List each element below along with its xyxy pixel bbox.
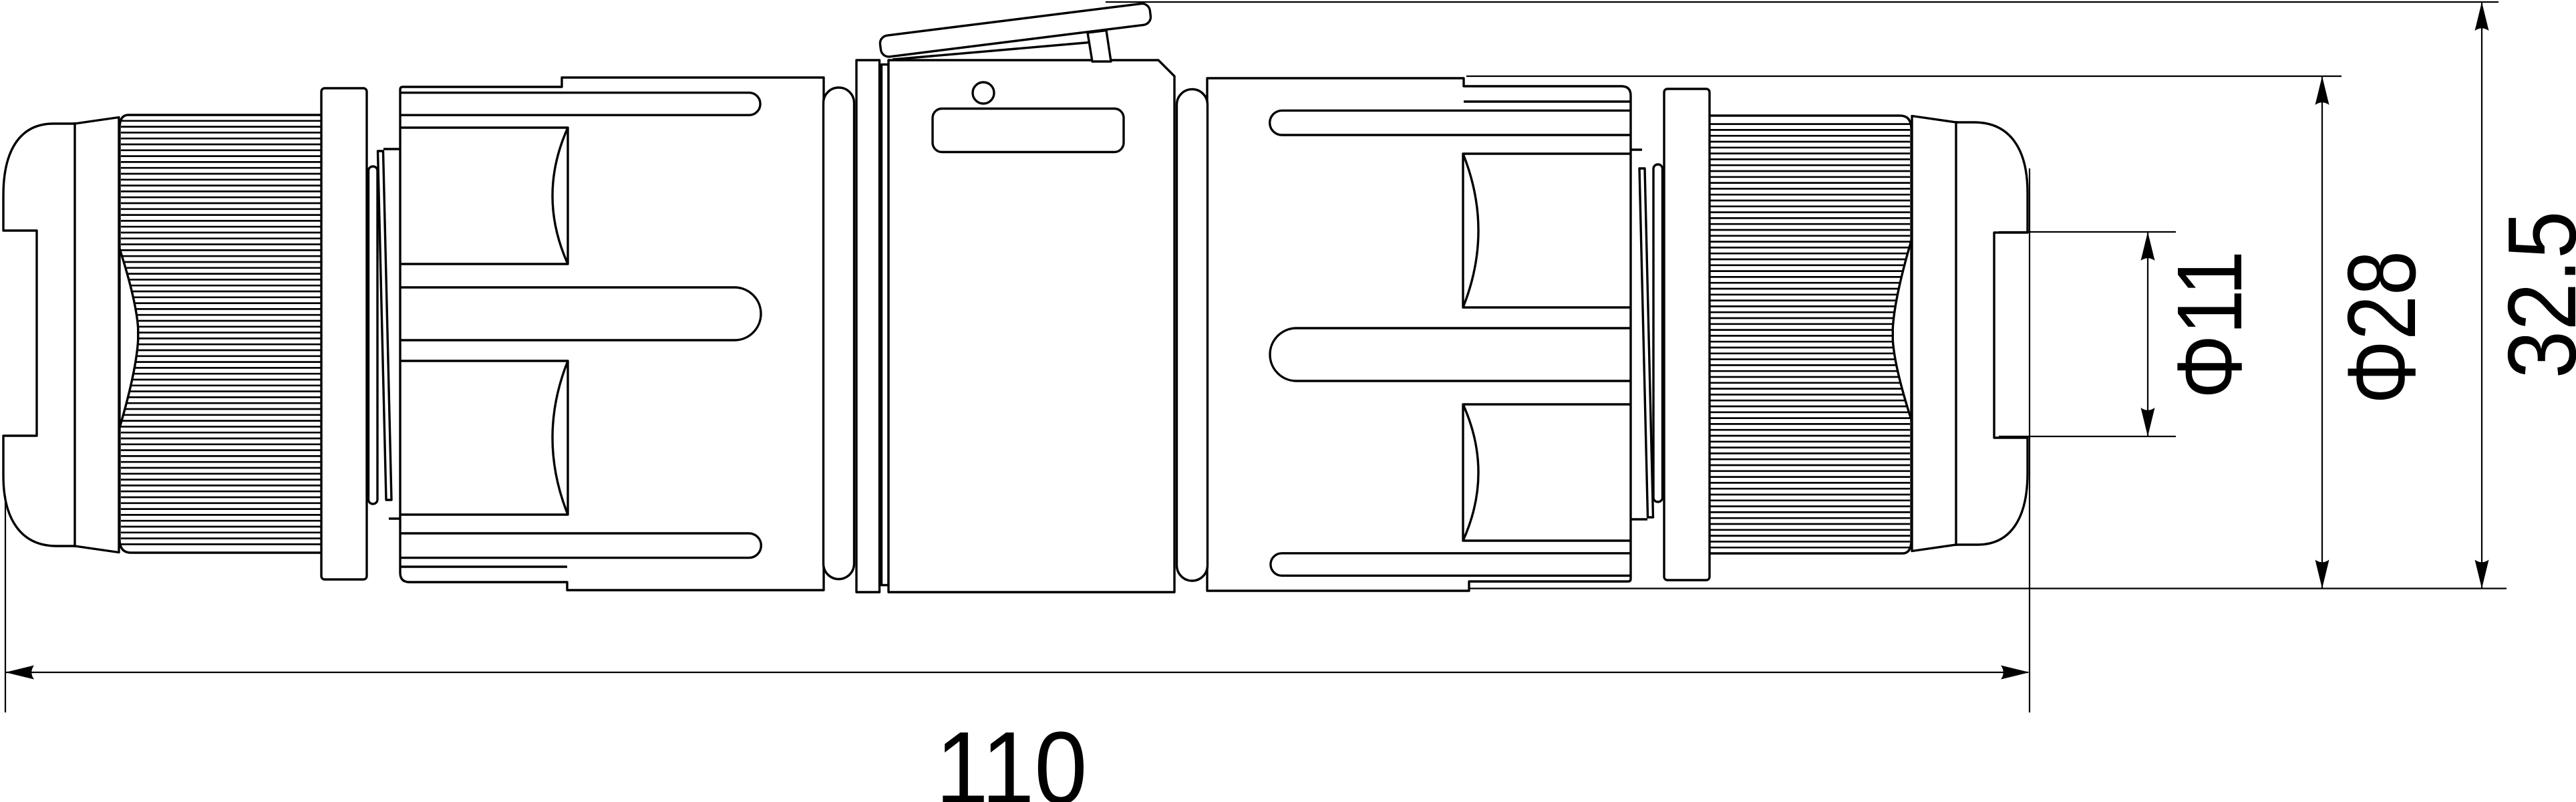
svg-text:Φ28: Φ28 (2327, 251, 2436, 404)
svg-text:32.5: 32.5 (2488, 211, 2576, 379)
svg-text:Φ11: Φ11 (2158, 251, 2261, 399)
svg-text:110: 110 (936, 710, 1088, 802)
